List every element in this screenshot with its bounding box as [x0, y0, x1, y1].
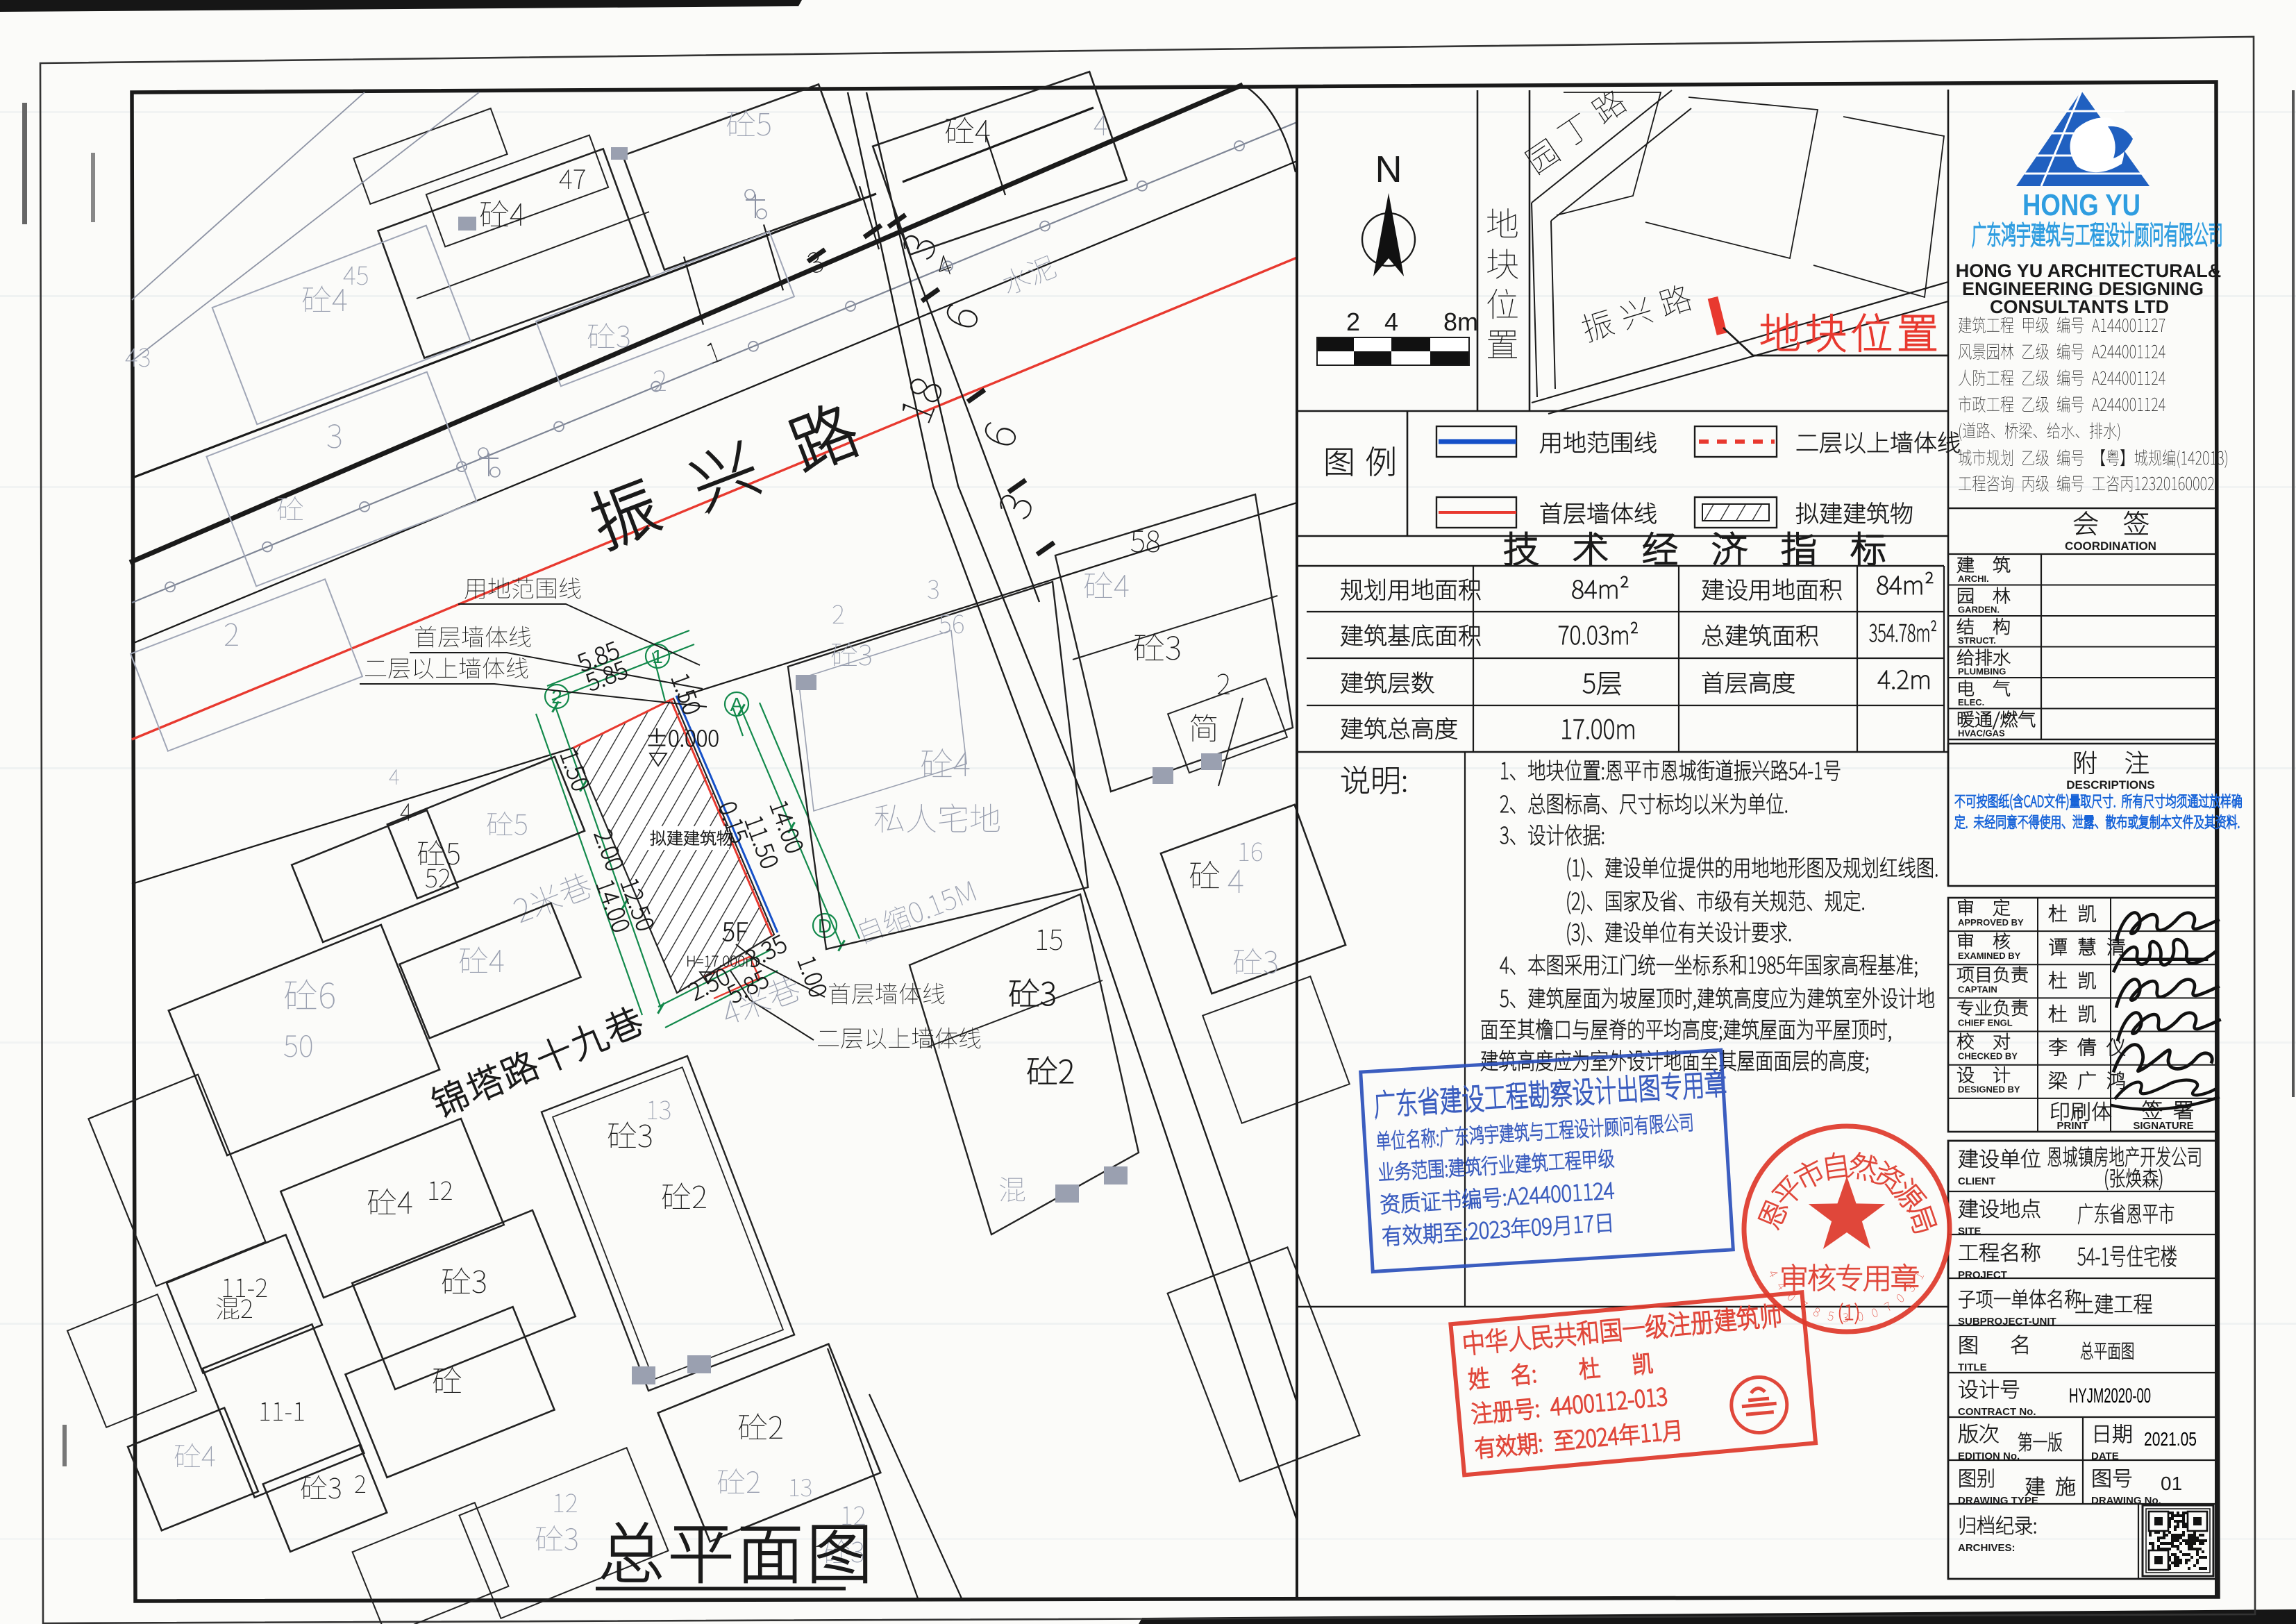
- svg-text:SIGNATURE: SIGNATURE: [2133, 1120, 2193, 1132]
- svg-text:ARCHIVES:: ARCHIVES:: [1958, 1542, 2016, 1554]
- svg-text:CHIEF ENGL: CHIEF ENGL: [1958, 1017, 2013, 1028]
- svg-text:CONSULTANTS LTD: CONSULTANTS LTD: [1990, 296, 2169, 317]
- svg-text:HVAC/GAS: HVAC/GAS: [1958, 728, 2005, 739]
- svg-text:01: 01: [2161, 1473, 2182, 1494]
- svg-text:8m: 8m: [1443, 308, 1478, 336]
- svg-text:ELEC.: ELEC.: [1958, 697, 1984, 708]
- svg-text:CONTRACT No.: CONTRACT No.: [1958, 1406, 2036, 1418]
- svg-text:CLIENT: CLIENT: [1958, 1175, 1995, 1187]
- svg-text:DRAWING TYPE: DRAWING TYPE: [1958, 1495, 2038, 1507]
- svg-text:APPROVED BY: APPROVED BY: [1958, 917, 2024, 928]
- svg-text:DESIGNED BY: DESIGNED BY: [1958, 1085, 2020, 1095]
- svg-text:EXAMINED BY: EXAMINED BY: [1958, 951, 2021, 961]
- svg-text:1: 1: [652, 646, 663, 667]
- svg-text:DATE: DATE: [2091, 1450, 2119, 1462]
- svg-text:CHECKED BY: CHECKED BY: [1958, 1051, 2018, 1062]
- svg-text:ARCHI.: ARCHI.: [1958, 574, 1989, 584]
- svg-text:SITE: SITE: [1958, 1225, 1981, 1237]
- svg-text:N: N: [1375, 149, 1402, 190]
- svg-text:HONG YU: HONG YU: [2022, 188, 2140, 222]
- svg-text:2021.05: 2021.05: [2144, 1428, 2197, 1450]
- svg-text:PLUMBING: PLUMBING: [1958, 667, 2006, 677]
- svg-text:EDITION No.: EDITION No.: [1958, 1450, 2020, 1462]
- svg-text:PRINT: PRINT: [2057, 1120, 2088, 1132]
- svg-text:DESCRIPTIONS: DESCRIPTIONS: [2066, 778, 2155, 792]
- svg-text:2: 2: [1346, 308, 1360, 336]
- svg-text:PROJECT: PROJECT: [1958, 1269, 2007, 1281]
- svg-text:4: 4: [1384, 308, 1398, 336]
- svg-text:A: A: [730, 694, 744, 715]
- svg-text:STRUCT.: STRUCT.: [1958, 635, 1996, 646]
- svg-text:2: 2: [551, 686, 562, 708]
- svg-text:HYJM2020-00: HYJM2020-00: [2069, 1384, 2151, 1407]
- svg-text:SUBPROJECT-UNIT: SUBPROJECT-UNIT: [1958, 1316, 2056, 1328]
- svg-text:TITLE: TITLE: [1958, 1362, 1987, 1373]
- svg-text:COORDINATION: COORDINATION: [2065, 539, 2156, 553]
- svg-text:GARDEN.: GARDEN.: [1958, 605, 2000, 615]
- svg-text:CAPTAIN: CAPTAIN: [1958, 984, 1997, 994]
